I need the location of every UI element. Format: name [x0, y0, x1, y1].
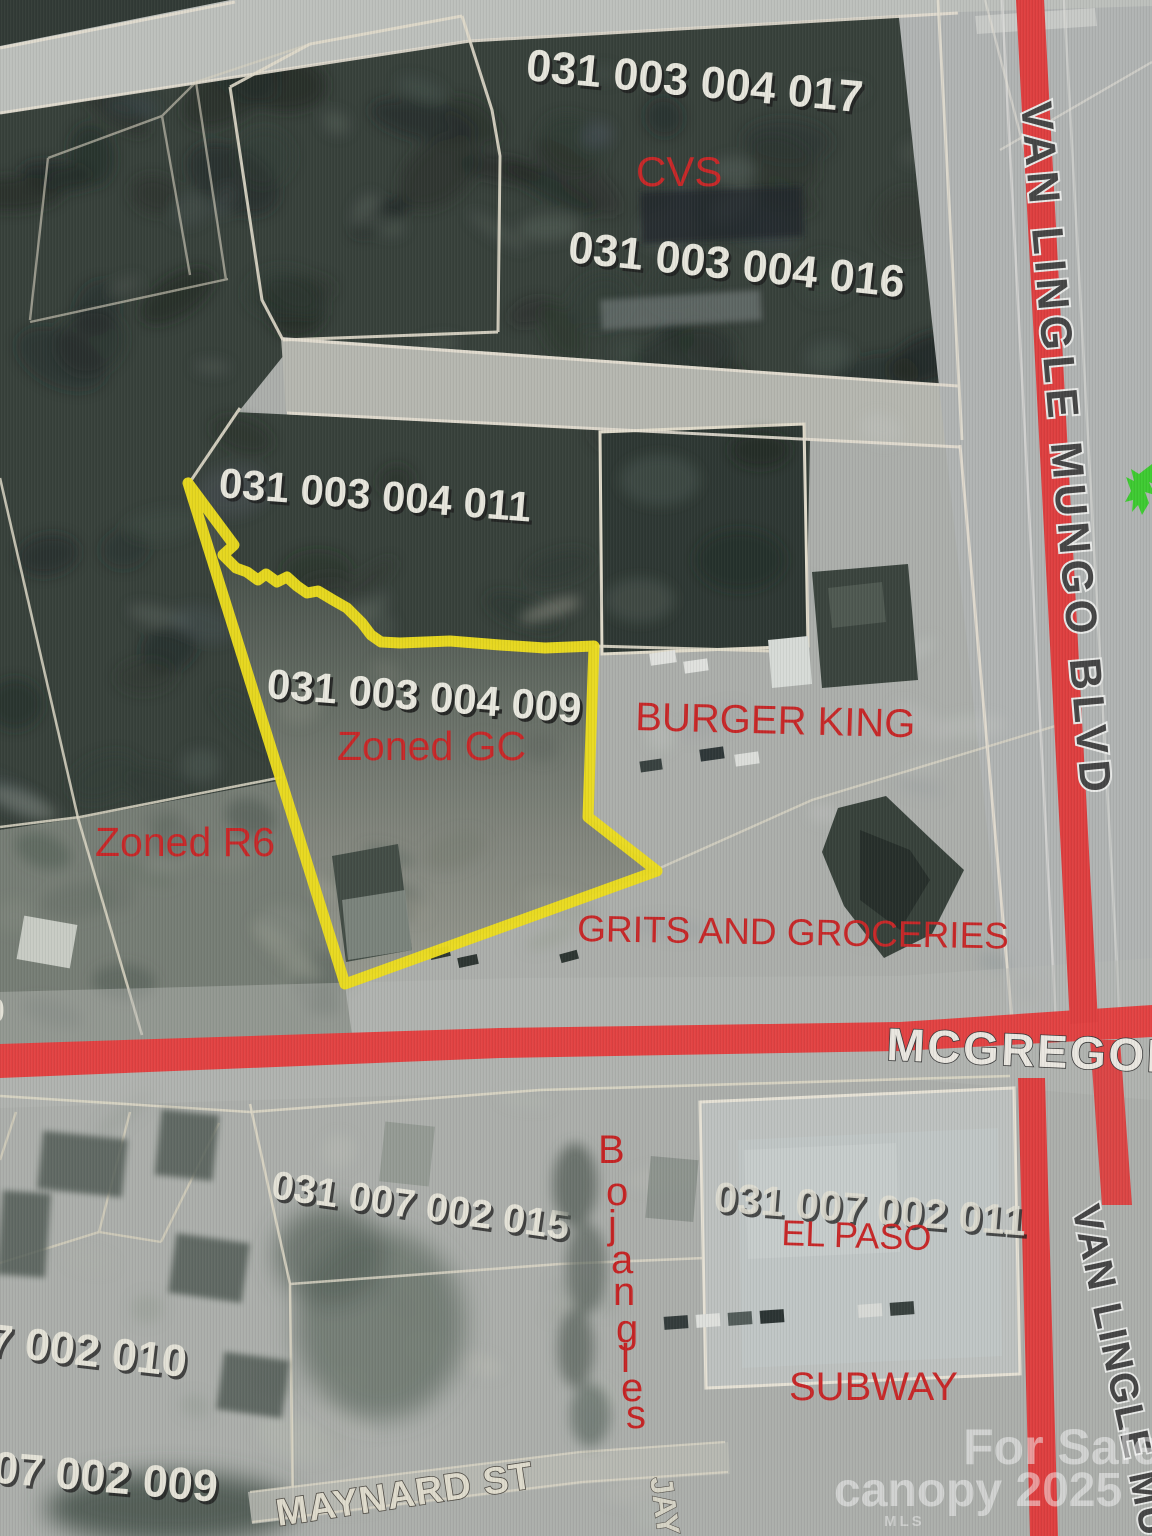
svg-text:SUBWAY: SUBWAY: [789, 1365, 958, 1409]
svg-text:GRITS AND GROCERIES: GRITS AND GROCERIES: [577, 908, 1009, 957]
svg-text:BURGER KING: BURGER KING: [635, 695, 916, 746]
svg-text:Zoned GC: Zoned GC: [337, 723, 526, 769]
svg-text:MLS: MLS: [884, 1513, 925, 1530]
svg-text:B: B: [598, 1128, 625, 1172]
svg-text:Zoned R6: Zoned R6: [95, 819, 275, 865]
svg-text:0: 0: [0, 992, 5, 1030]
svg-text:canopy 2025: canopy 2025: [834, 1464, 1122, 1517]
svg-text:EL PASO: EL PASO: [781, 1212, 932, 1258]
svg-text:CVS: CVS: [636, 148, 722, 195]
svg-text:s: s: [626, 1393, 646, 1437]
